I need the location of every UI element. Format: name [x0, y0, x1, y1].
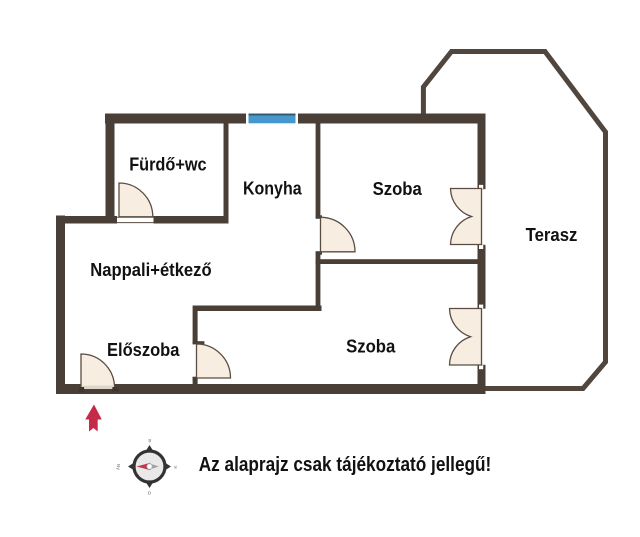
svg-text:D: D: [148, 491, 152, 497]
svg-text:Konyha: Konyha: [243, 179, 302, 199]
svg-text:Szoba: Szoba: [373, 179, 423, 199]
svg-text:Szoba: Szoba: [346, 336, 396, 356]
svg-text:Fürdő+wc: Fürdő+wc: [129, 155, 206, 175]
svg-text:Az alaprajz csak tájékoztató j: Az alaprajz csak tájékoztató jellegű!: [199, 453, 492, 476]
svg-text:Terasz: Terasz: [526, 225, 578, 245]
svg-text:Ny: Ny: [115, 464, 121, 470]
svg-text:Nappali+étkező: Nappali+étkező: [90, 260, 211, 280]
svg-text:K: K: [173, 465, 179, 469]
svg-text:Előszoba: Előszoba: [107, 340, 180, 360]
